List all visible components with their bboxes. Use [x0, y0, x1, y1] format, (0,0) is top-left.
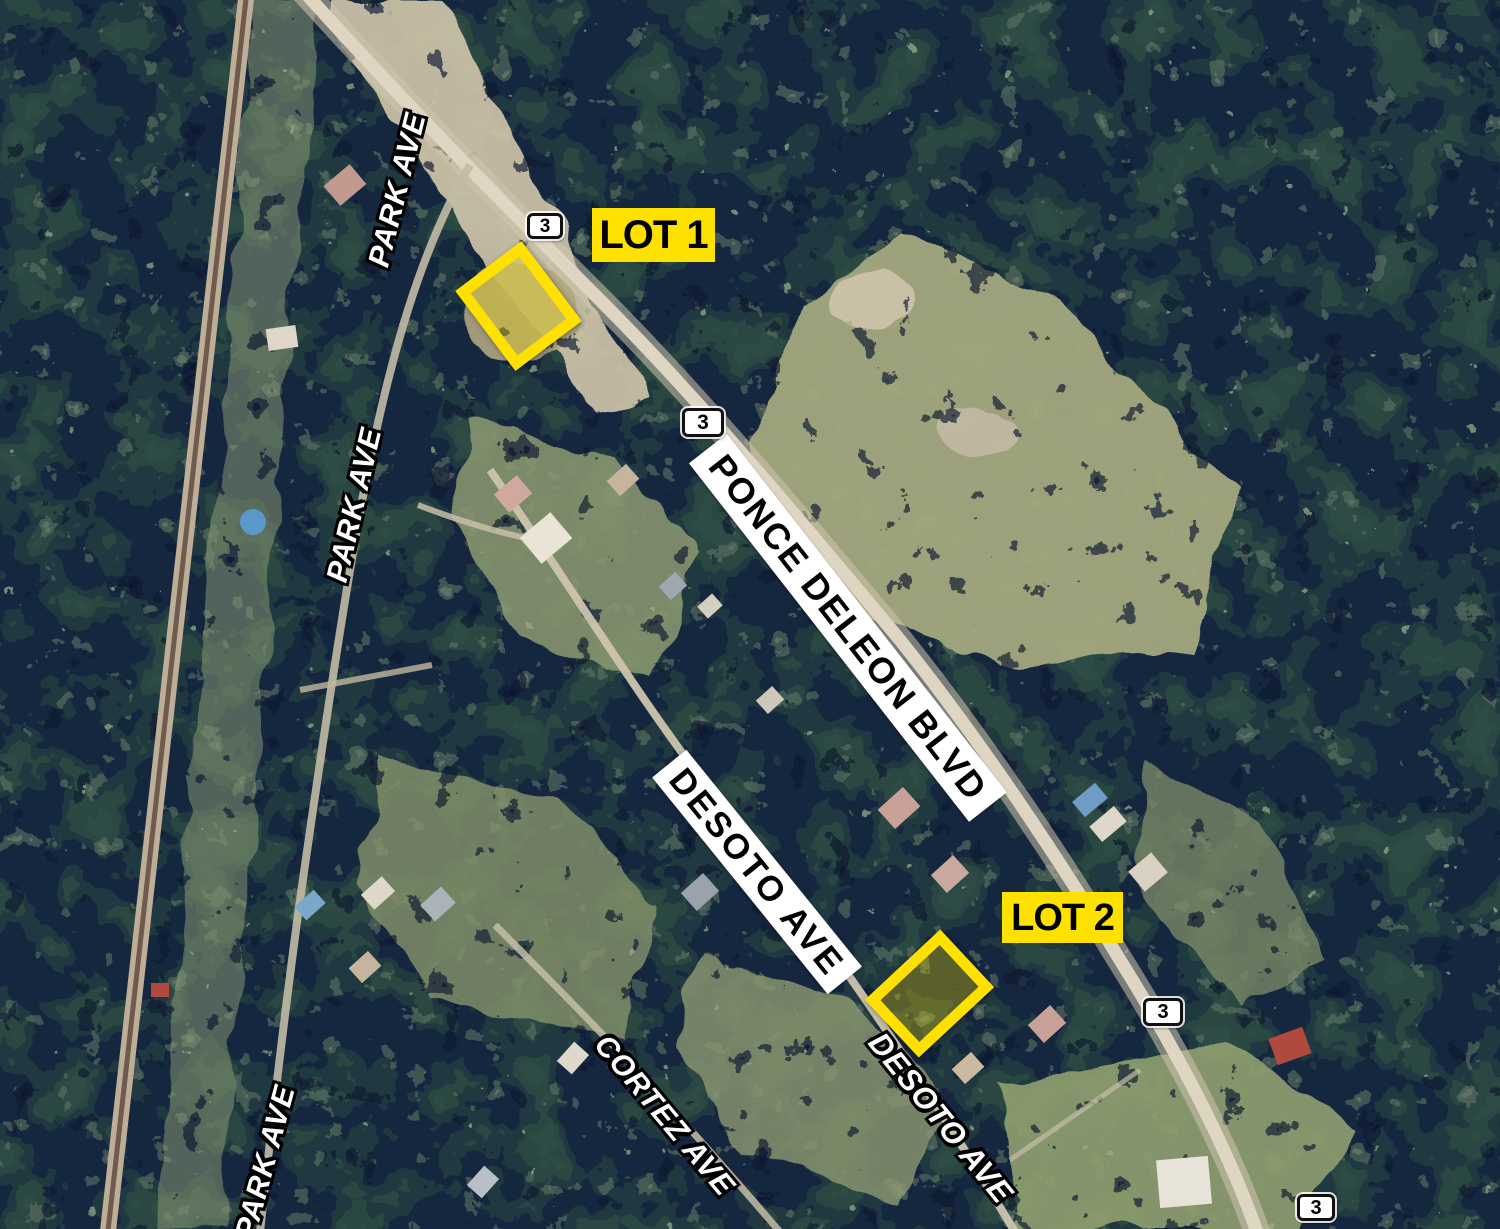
street-label-park-ave-top: PARK AVE	[364, 110, 431, 270]
route-3-shield-south: 3	[1143, 998, 1183, 1026]
street-label-park-ave-middle: PARK AVE	[323, 425, 388, 585]
street-banner-desoto-ave: DESOTO AVE	[652, 750, 862, 994]
street-banner-ponce-deleon-blvd: PONCE DELEON BLVD	[689, 434, 1007, 822]
lot-1-tag: LOT 1	[592, 208, 715, 262]
street-label-cortez-ave: CORTEZ AVE	[588, 1030, 739, 1202]
lot-2-tag: LOT 2	[1002, 892, 1123, 943]
street-label-park-ave-bottom: PARK AVE	[231, 1082, 301, 1229]
street-label-desoto-ave-lower: DESOTO AVE	[863, 1027, 1019, 1209]
aerial-map: PONCE DELEON BLVD DESOTO AVE PARK AVE PA…	[0, 0, 1500, 1229]
annotations: PONCE DELEON BLVD DESOTO AVE PARK AVE PA…	[0, 0, 1500, 1229]
route-3-shield-north: 3	[527, 213, 563, 239]
lot-1-parcel-highlight	[455, 241, 581, 371]
route-3-shield-mid: 3	[682, 408, 724, 437]
route-3-shield-southeast: 3	[1297, 1194, 1335, 1221]
